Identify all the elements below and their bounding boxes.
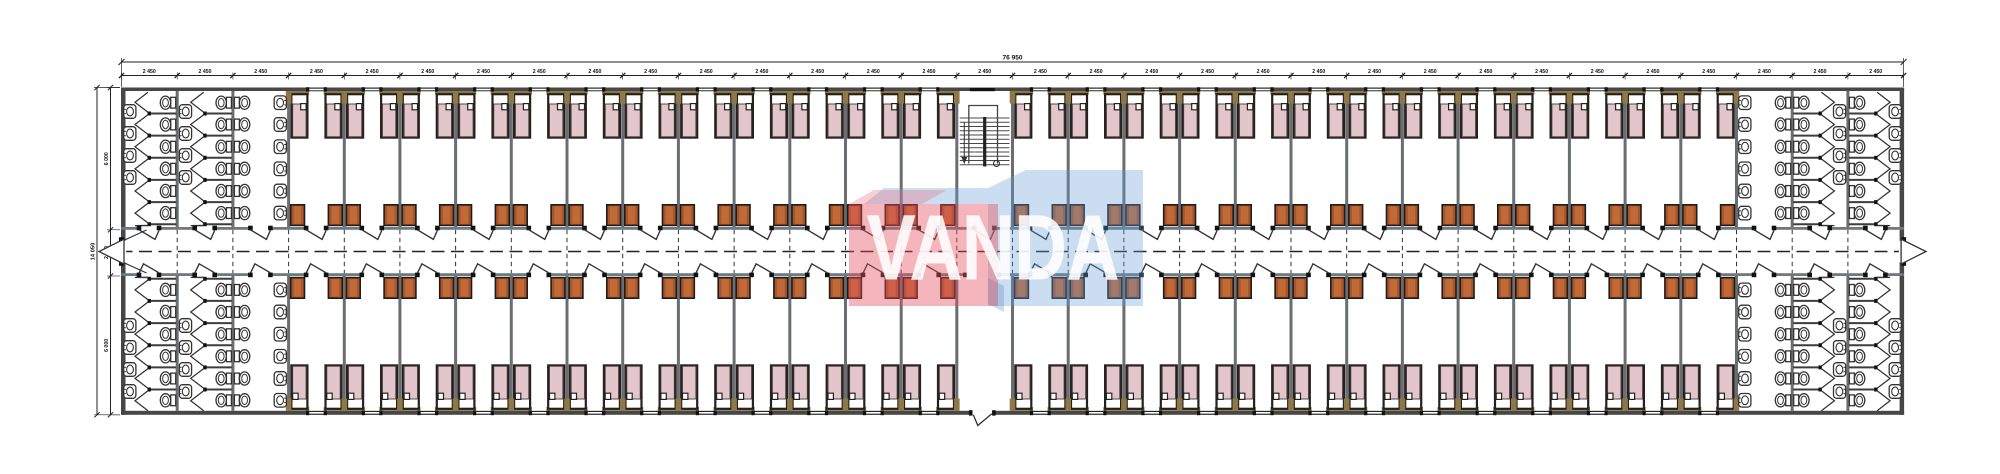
svg-text:2 450: 2 450 <box>1257 69 1270 75</box>
svg-text:2 450: 2 450 <box>1535 69 1548 75</box>
svg-text:2 450: 2 450 <box>366 69 379 75</box>
svg-text:2 450: 2 450 <box>143 69 156 75</box>
svg-text:2 450: 2 450 <box>1591 69 1604 75</box>
svg-text:2 450: 2 450 <box>923 69 936 75</box>
svg-text:76 950: 76 950 <box>1003 55 1023 62</box>
svg-text:2 450: 2 450 <box>1869 69 1882 75</box>
svg-text:2 450: 2 450 <box>310 69 323 75</box>
svg-text:2 450: 2 450 <box>1702 69 1715 75</box>
svg-text:2 450: 2 450 <box>1145 69 1158 75</box>
svg-text:2 450: 2 450 <box>477 69 490 75</box>
svg-text:2 450: 2 450 <box>1647 69 1660 75</box>
svg-text:2 450: 2 450 <box>811 69 824 75</box>
svg-text:2 450: 2 450 <box>644 69 657 75</box>
svg-text:2 450: 2 450 <box>867 69 880 75</box>
svg-text:2 450: 2 450 <box>1479 69 1492 75</box>
svg-text:2 450: 2 450 <box>755 69 768 75</box>
svg-text:2 450: 2 450 <box>700 69 713 75</box>
svg-text:6 000: 6 000 <box>104 152 110 165</box>
svg-text:6 000: 6 000 <box>104 339 110 352</box>
svg-text:14 050: 14 050 <box>91 243 97 261</box>
svg-text:VANDA: VANDA <box>867 197 1119 299</box>
svg-text:2 450: 2 450 <box>533 69 546 75</box>
svg-text:2 450: 2 450 <box>978 69 991 75</box>
svg-text:2 450: 2 450 <box>1368 69 1381 75</box>
svg-text:2 450: 2 450 <box>1758 69 1771 75</box>
svg-text:2 450: 2 450 <box>1090 69 1103 75</box>
svg-text:2 450: 2 450 <box>199 69 212 75</box>
svg-text:2 450: 2 450 <box>1034 69 1047 75</box>
svg-text:2 450: 2 450 <box>1312 69 1325 75</box>
svg-text:2 450: 2 450 <box>254 69 267 75</box>
svg-text:2 450: 2 450 <box>421 69 434 75</box>
svg-text:2 450: 2 450 <box>1201 69 1214 75</box>
svg-text:2 450: 2 450 <box>1814 69 1827 75</box>
svg-text:2 450: 2 450 <box>588 69 601 75</box>
svg-text:2 450: 2 450 <box>1424 69 1437 75</box>
